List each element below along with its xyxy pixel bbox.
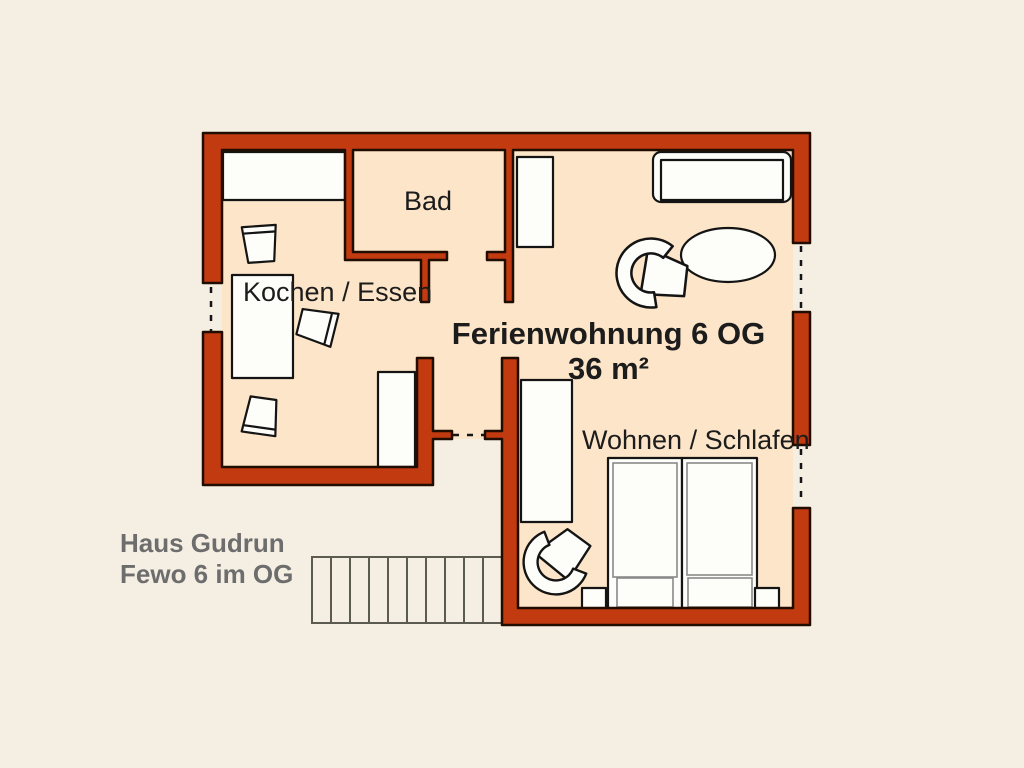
annotation-line-1: Haus Gudrun <box>120 528 293 559</box>
annotation-line-2: Fewo 6 im OG <box>120 559 293 590</box>
dining-chair-top <box>242 225 278 263</box>
plan-annotation: Haus Gudrun Fewo 6 im OG <box>120 528 293 590</box>
bedroom-sideboard <box>521 380 572 522</box>
kitchen-counter <box>223 152 345 200</box>
living-sleeping-label: Wohnen / Schlafen <box>582 425 810 456</box>
bed-left <box>608 458 682 610</box>
kitchen-label: Kochen / Essen <box>243 277 432 308</box>
bed-right <box>682 458 757 610</box>
plan-title: Ferienwohnung 6 OG <box>400 316 817 352</box>
bathroom-label: Bad <box>378 186 478 217</box>
staircase <box>312 557 502 623</box>
floor-plan: Bad Kochen / Essen Wohnen / Schlafen Fer… <box>0 0 1024 768</box>
plan-area: 36 m² <box>400 351 817 387</box>
cabinet-by-bathroom <box>517 157 553 247</box>
oval-table <box>681 228 775 282</box>
sofa <box>653 152 791 202</box>
